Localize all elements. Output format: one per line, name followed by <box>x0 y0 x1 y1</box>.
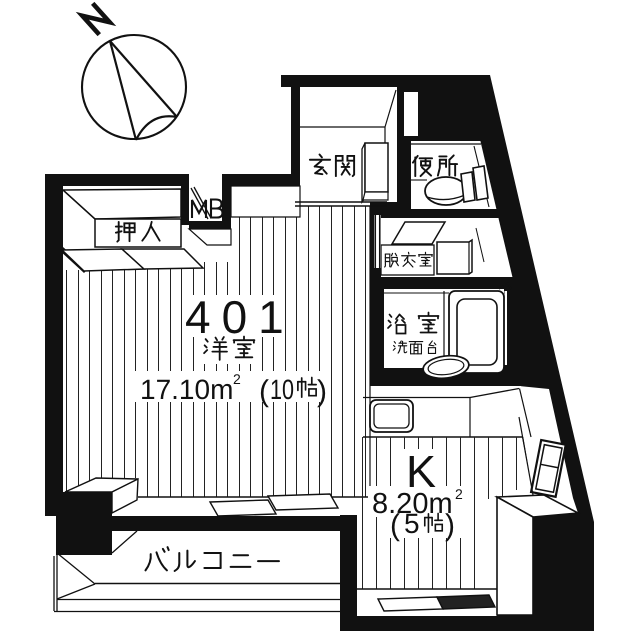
svg-text:401: 401 <box>185 291 295 343</box>
svg-text:): ) <box>317 375 327 408</box>
svg-text:(: ( <box>259 375 269 408</box>
svg-text:2: 2 <box>233 371 241 387</box>
svg-text:2: 2 <box>455 486 463 502</box>
svg-text:17.10m: 17.10m <box>140 374 233 405</box>
svg-text:10: 10 <box>270 374 294 405</box>
svg-text:(: ( <box>390 509 400 542</box>
svg-text:): ) <box>445 509 455 542</box>
svg-text:5: 5 <box>404 508 420 539</box>
